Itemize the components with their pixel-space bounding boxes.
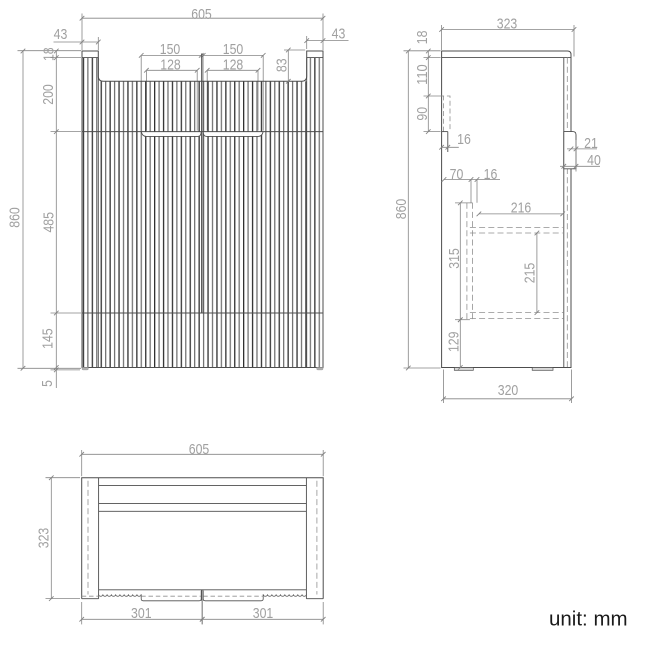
svg-text:70: 70 (450, 166, 464, 183)
svg-text:90: 90 (414, 107, 431, 121)
svg-text:129: 129 (445, 332, 462, 353)
svg-text:16: 16 (484, 166, 498, 183)
svg-text:16: 16 (457, 131, 471, 148)
svg-text:216: 216 (511, 199, 532, 216)
svg-text:43: 43 (332, 25, 346, 42)
svg-text:215: 215 (522, 263, 539, 284)
svg-text:315: 315 (446, 248, 463, 269)
svg-text:5: 5 (39, 380, 56, 387)
svg-text:605: 605 (189, 441, 210, 458)
svg-text:200: 200 (40, 84, 57, 105)
svg-text:320: 320 (498, 382, 519, 399)
svg-text:485: 485 (40, 212, 57, 233)
svg-text:860: 860 (6, 207, 23, 228)
svg-text:605: 605 (191, 6, 212, 23)
svg-text:83: 83 (274, 58, 291, 72)
svg-text:128: 128 (223, 56, 244, 73)
svg-text:21: 21 (584, 135, 598, 152)
svg-text:860: 860 (393, 199, 410, 220)
svg-text:18: 18 (40, 47, 57, 61)
svg-text:18: 18 (414, 31, 431, 45)
svg-text:110: 110 (414, 64, 431, 85)
svg-text:150: 150 (160, 41, 181, 58)
svg-text:323: 323 (497, 15, 518, 32)
svg-text:301: 301 (253, 605, 274, 622)
svg-text:323: 323 (35, 528, 52, 549)
svg-text:150: 150 (223, 41, 244, 58)
svg-text:unit: mm: unit: mm (549, 608, 628, 631)
svg-text:145: 145 (40, 328, 57, 349)
svg-text:40: 40 (587, 152, 601, 169)
svg-text:43: 43 (54, 26, 68, 43)
svg-text:301: 301 (131, 605, 152, 622)
svg-text:128: 128 (160, 56, 181, 73)
